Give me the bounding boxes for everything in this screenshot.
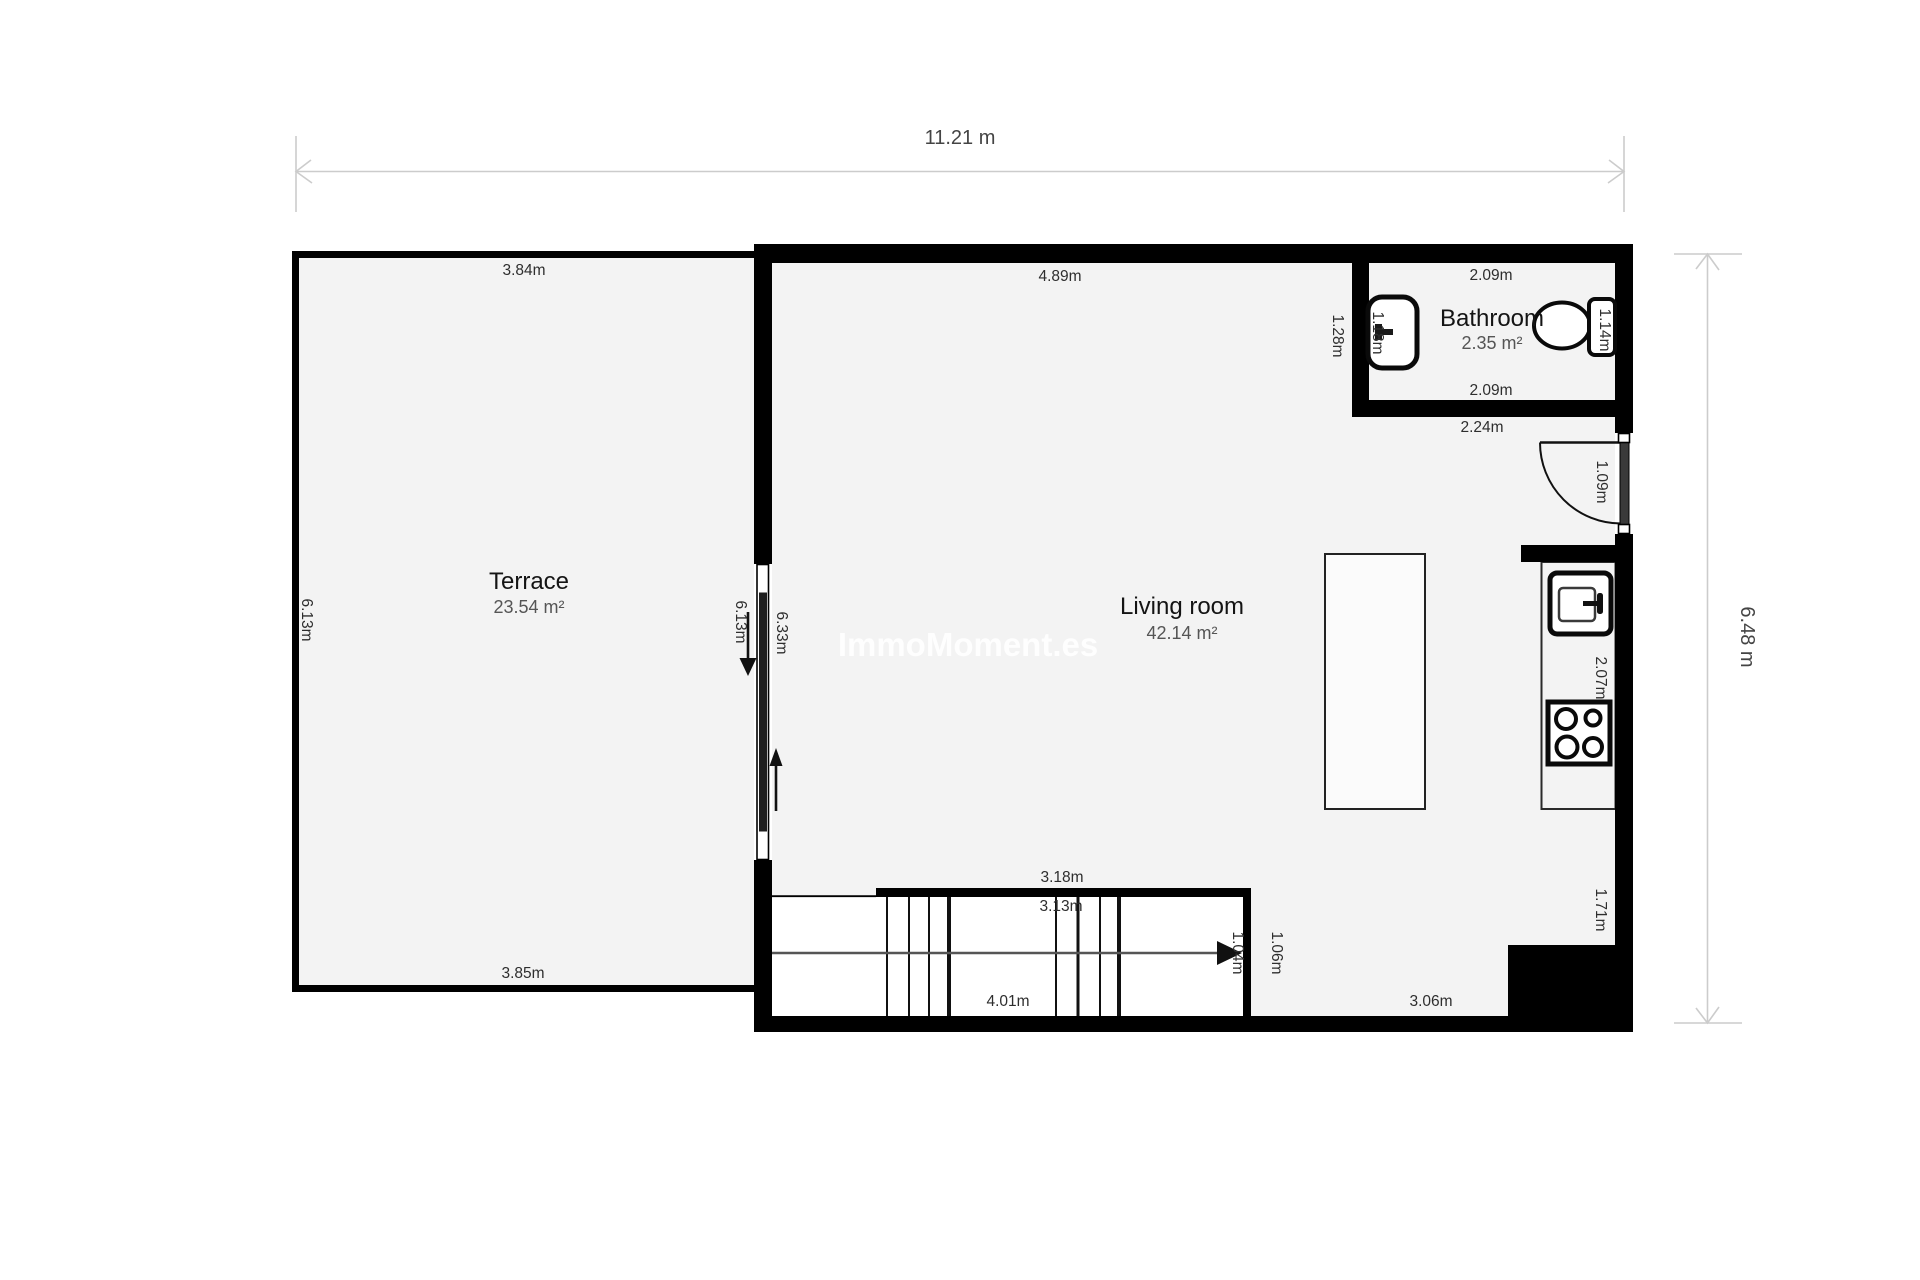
svg-text:Living room: Living room: [1120, 593, 1244, 620]
svg-text:6.13m: 6.13m: [298, 598, 315, 641]
svg-text:1.14m: 1.14m: [1596, 308, 1613, 351]
svg-text:Terrace: Terrace: [489, 568, 569, 595]
svg-text:1.28m: 1.28m: [1329, 314, 1346, 357]
svg-text:23.54 m²: 23.54 m²: [493, 597, 564, 617]
svg-text:6.13m: 6.13m: [732, 600, 749, 643]
svg-text:1.18m: 1.18m: [1369, 311, 1386, 354]
svg-text:3.06m: 3.06m: [1409, 993, 1452, 1010]
svg-text:Bathroom: Bathroom: [1440, 305, 1544, 332]
svg-text:2.24m: 2.24m: [1460, 419, 1503, 436]
svg-text:1.06m: 1.06m: [1268, 931, 1285, 974]
svg-text:11.21 m: 11.21 m: [925, 127, 996, 149]
svg-text:2.09m: 2.09m: [1469, 382, 1512, 399]
svg-text:1.71m: 1.71m: [1592, 888, 1609, 931]
svg-text:2.07m: 2.07m: [1592, 656, 1609, 699]
svg-text:6.48 m: 6.48 m: [1736, 606, 1758, 667]
svg-text:3.13m: 3.13m: [1039, 898, 1082, 915]
svg-text:ImmoMoment.es: ImmoMoment.es: [838, 626, 1098, 663]
svg-text:4.89m: 4.89m: [1038, 268, 1081, 285]
svg-text:2.35 m²: 2.35 m²: [1461, 333, 1522, 353]
svg-text:1.04m: 1.04m: [1229, 931, 1246, 974]
svg-text:4.01m: 4.01m: [986, 993, 1029, 1010]
svg-text:3.18m: 3.18m: [1040, 869, 1083, 886]
svg-text:1.09m: 1.09m: [1593, 460, 1610, 503]
svg-text:3.84m: 3.84m: [502, 262, 545, 279]
svg-text:3.85m: 3.85m: [501, 965, 544, 982]
svg-text:42.14 m²: 42.14 m²: [1146, 623, 1217, 643]
svg-text:6.33m: 6.33m: [773, 611, 790, 654]
svg-text:2.09m: 2.09m: [1469, 267, 1512, 284]
